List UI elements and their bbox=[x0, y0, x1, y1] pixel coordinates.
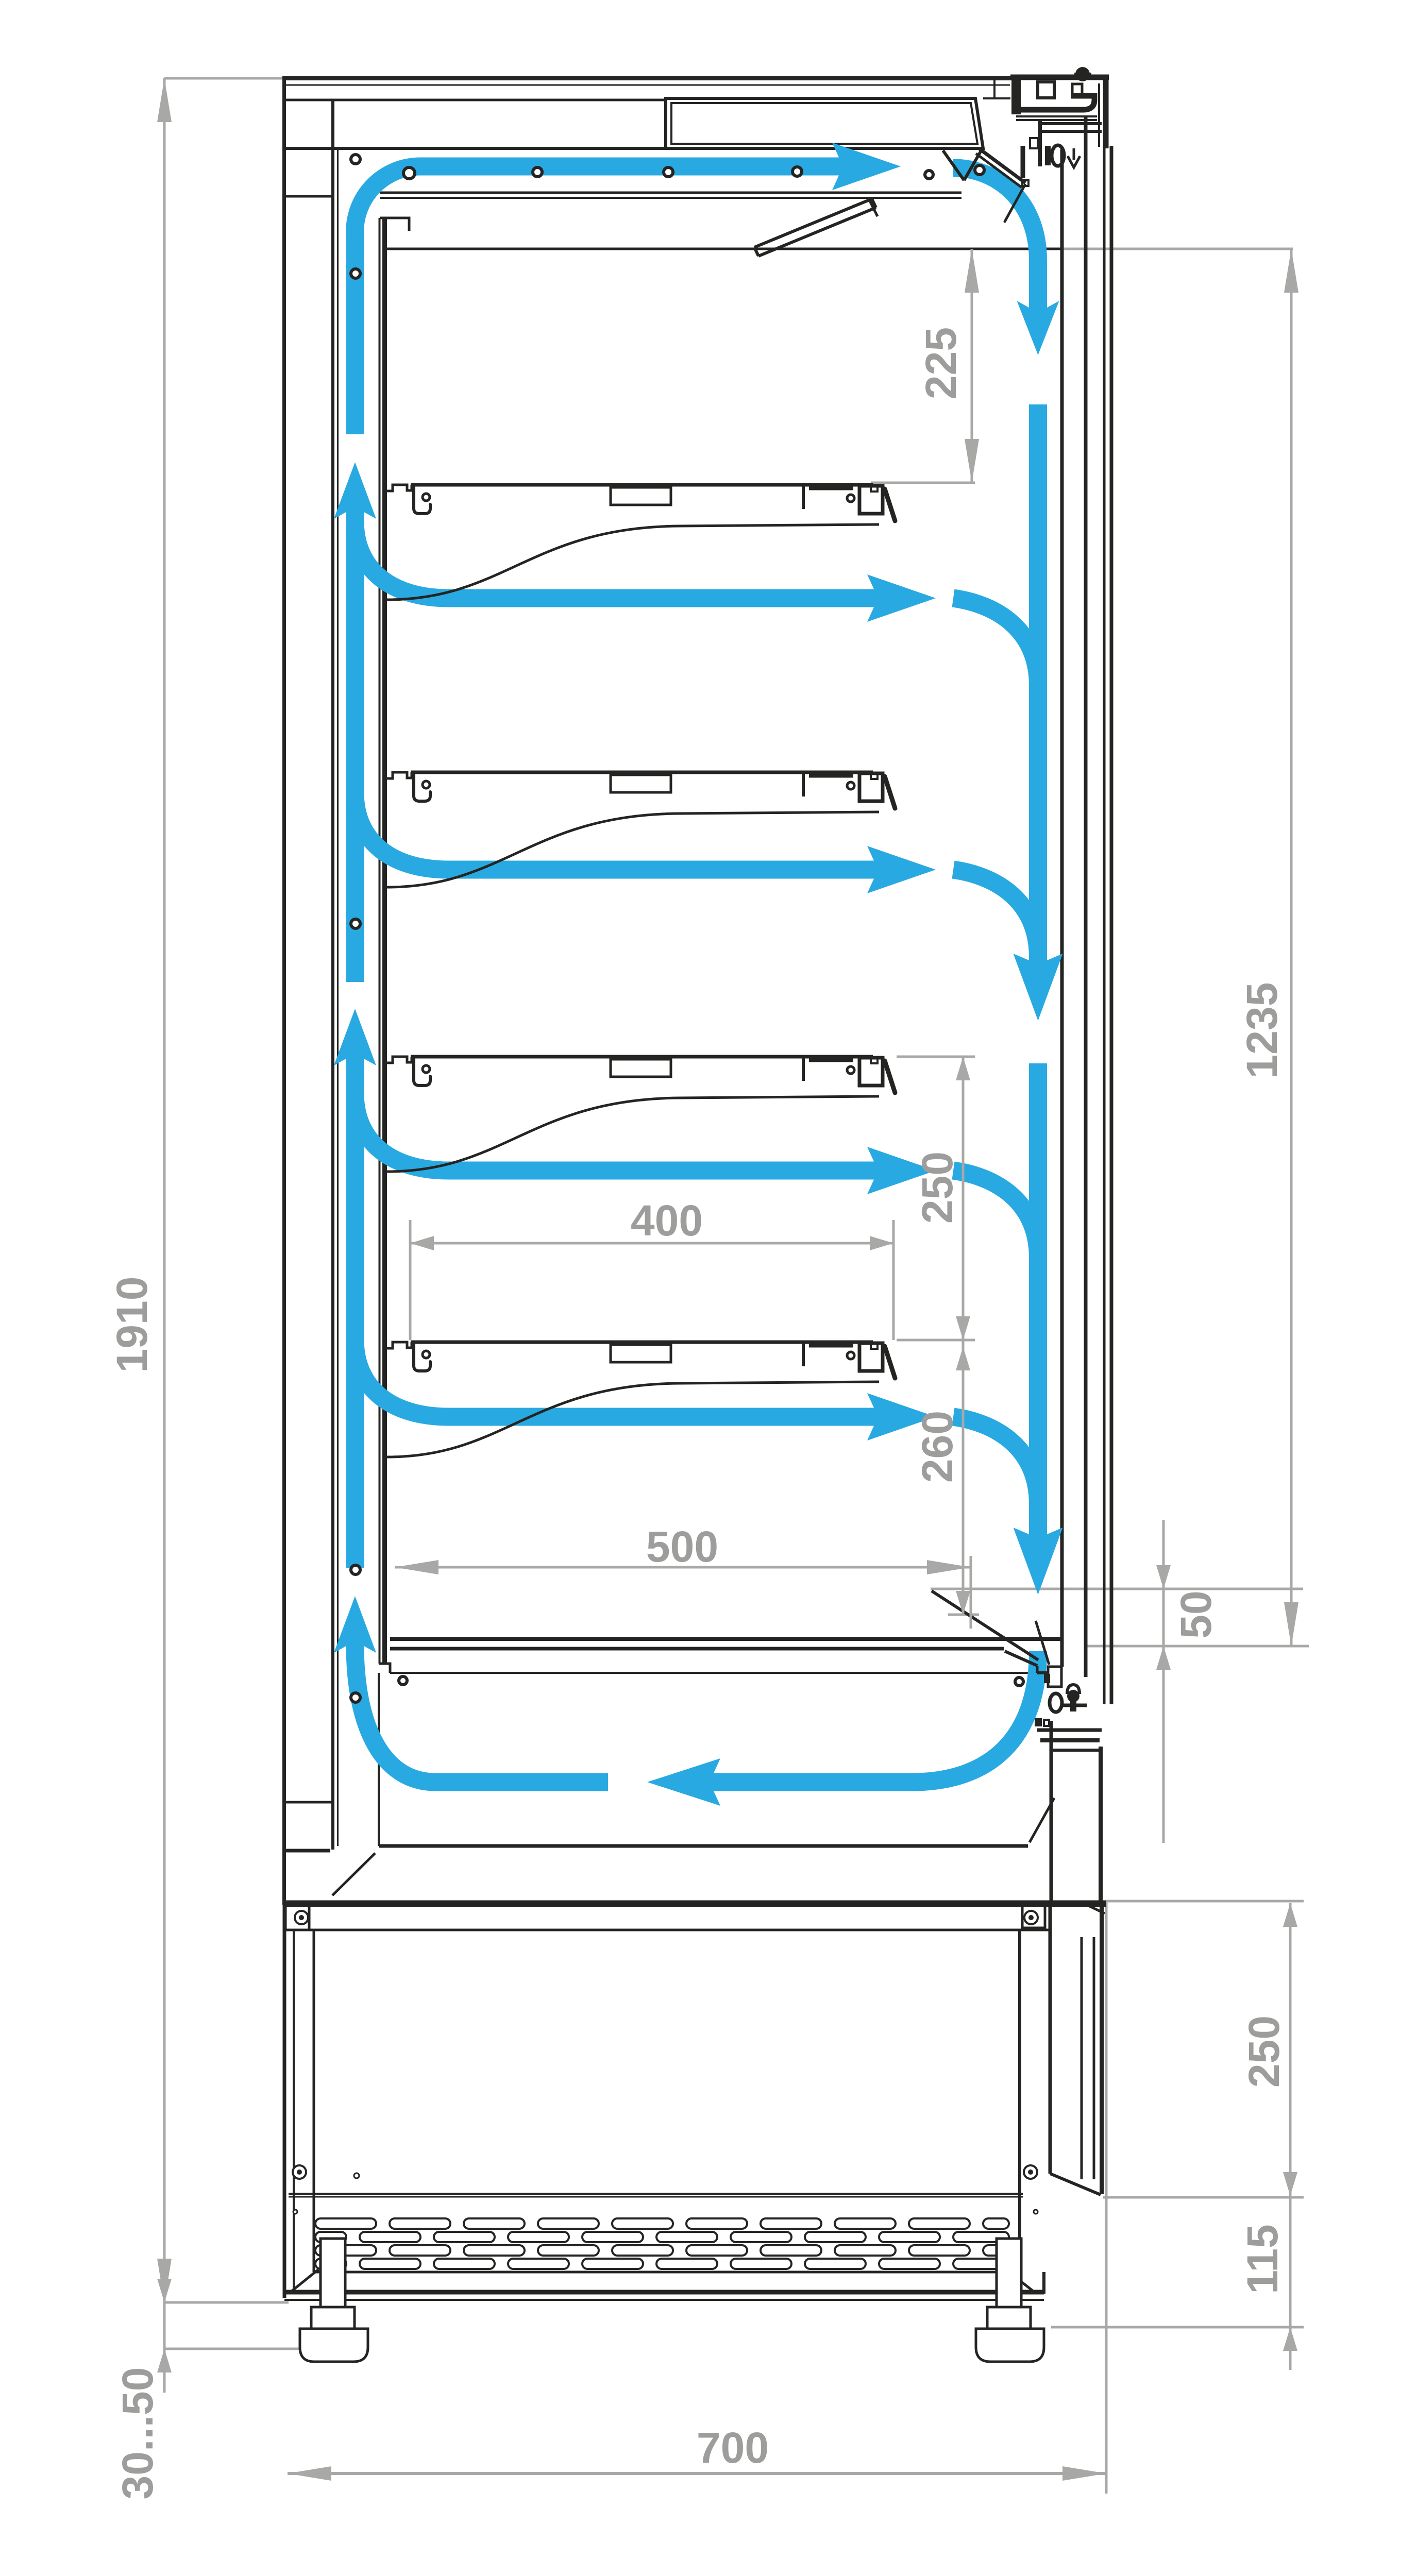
svg-text:500: 500 bbox=[646, 1522, 718, 1571]
svg-text:50: 50 bbox=[1172, 1590, 1220, 1638]
svg-text:250: 250 bbox=[1240, 2015, 1288, 2088]
svg-text:250: 250 bbox=[913, 1151, 961, 1224]
svg-text:1235: 1235 bbox=[1238, 982, 1286, 1079]
svg-text:115: 115 bbox=[1238, 2224, 1287, 2294]
svg-text:260: 260 bbox=[913, 1411, 961, 1483]
svg-text:700: 700 bbox=[697, 2424, 769, 2472]
svg-text:225: 225 bbox=[917, 327, 965, 399]
svg-text:1910: 1910 bbox=[108, 1277, 156, 1373]
svg-text:30...50: 30...50 bbox=[113, 2367, 162, 2500]
svg-text:400: 400 bbox=[631, 1196, 703, 1245]
